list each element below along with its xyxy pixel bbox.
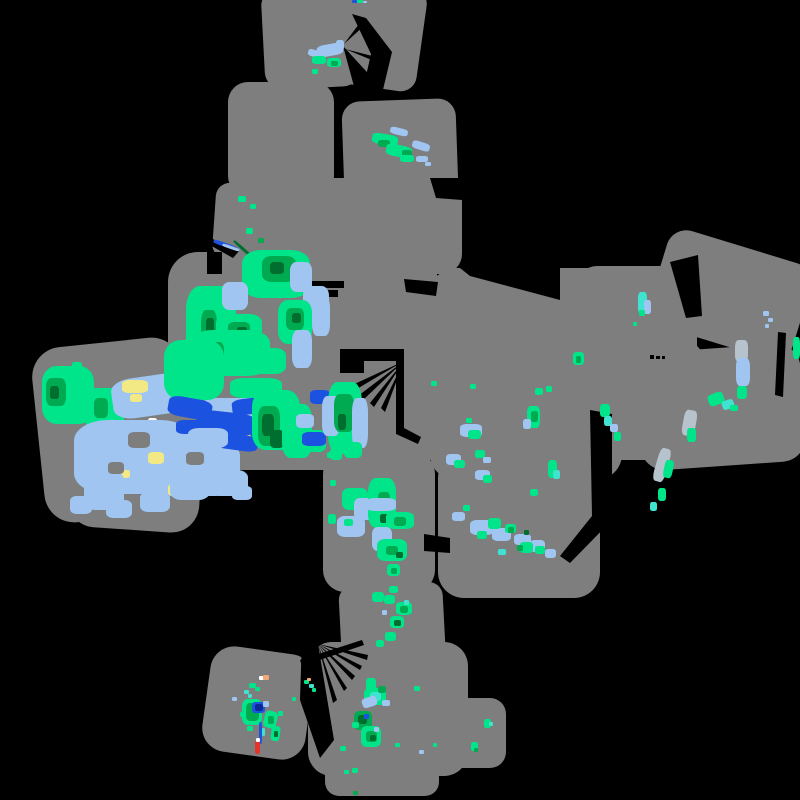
precip-echo — [344, 442, 362, 458]
precip-echo — [644, 300, 651, 314]
precip-echo — [687, 428, 696, 442]
precip-echo — [374, 727, 379, 732]
precip-echo — [389, 586, 398, 593]
precip-echo — [232, 486, 252, 500]
precip-echo — [425, 162, 431, 166]
precip-echo — [340, 746, 346, 751]
precip-echo — [328, 514, 336, 524]
precip-echo — [370, 735, 376, 741]
precip-echo — [768, 318, 773, 322]
precip-echo — [535, 546, 545, 554]
precip-echo — [382, 610, 387, 615]
precip-echo — [352, 398, 368, 448]
precip-echo — [363, 1, 367, 3]
precip-echo — [763, 311, 769, 316]
precip-echo — [247, 726, 253, 731]
precip-echo — [186, 452, 204, 465]
precip-echo — [296, 414, 314, 428]
precip-echo — [232, 697, 237, 701]
precip-echo — [477, 531, 487, 539]
precip-echo — [238, 196, 246, 202]
precip-echo — [466, 418, 472, 423]
precip-echo — [452, 512, 465, 521]
beam-blockage-wedge — [460, 268, 560, 300]
radar-composite-map — [0, 0, 800, 800]
precip-echo — [246, 228, 253, 234]
precip-echo — [250, 204, 256, 209]
beam-blockage-wedge — [404, 279, 438, 296]
precip-echo — [400, 606, 408, 613]
precip-echo — [400, 155, 414, 162]
precip-echo — [488, 518, 501, 529]
precip-echo — [404, 600, 409, 605]
precip-echo — [312, 296, 330, 336]
precip-echo — [336, 40, 344, 50]
precip-echo — [414, 686, 420, 691]
precip-echo — [433, 743, 437, 747]
precip-echo — [793, 337, 800, 359]
precip-echo — [639, 310, 645, 316]
precip-echo — [391, 568, 397, 574]
precip-echo — [489, 722, 493, 726]
precip-echo — [366, 498, 396, 511]
precip-echo — [122, 380, 148, 393]
precip-echo — [535, 388, 543, 395]
precip-echo — [454, 460, 465, 468]
precip-echo — [140, 492, 170, 512]
precip-echo — [524, 530, 529, 535]
precip-echo — [188, 428, 228, 448]
precip-echo — [148, 452, 164, 464]
precip-echo — [498, 549, 506, 555]
precip-echo — [395, 743, 400, 747]
map-dot-marker — [656, 356, 660, 359]
precip-echo — [170, 470, 210, 500]
precip-echo — [50, 386, 59, 399]
precip-echo — [128, 432, 150, 448]
precip-echo — [222, 282, 248, 310]
precip-echo — [255, 687, 260, 691]
precip-echo — [344, 519, 353, 526]
precip-echo — [292, 330, 312, 368]
precip-echo — [737, 386, 747, 399]
precip-echo — [278, 711, 283, 716]
precip-echo — [523, 419, 531, 429]
precip-echo — [72, 362, 82, 370]
precip-echo — [274, 731, 278, 737]
precip-echo — [292, 313, 301, 323]
precip-echo — [94, 398, 108, 418]
precip-echo — [352, 722, 359, 728]
precip-echo — [384, 595, 395, 604]
precip-echo — [364, 714, 369, 719]
precip-echo — [576, 356, 581, 363]
precip-echo — [258, 238, 264, 243]
precip-echo — [633, 322, 637, 326]
beam-blockage-wedge — [430, 178, 462, 200]
precip-echo — [263, 675, 269, 680]
precip-echo — [106, 500, 132, 518]
precip-echo — [376, 640, 384, 647]
precip-echo — [396, 552, 403, 558]
beam-blockage-wedge — [424, 534, 450, 553]
precip-echo — [327, 452, 335, 458]
precip-echo — [545, 549, 556, 558]
precip-echo — [108, 462, 124, 474]
precip-echo — [338, 414, 346, 430]
precip-echo — [483, 475, 492, 483]
precip-echo — [463, 505, 470, 511]
precip-echo — [344, 770, 349, 774]
precip-echo — [270, 262, 284, 274]
precip-echo — [610, 424, 618, 432]
beam-blockage-wedge — [670, 255, 702, 318]
precip-echo — [240, 712, 245, 717]
precip-echo — [302, 432, 326, 446]
precip-echo — [483, 457, 491, 463]
precip-echo — [268, 716, 274, 724]
precip-echo — [531, 411, 538, 422]
beam-blockage-wedge — [775, 332, 786, 397]
precip-echo — [765, 324, 769, 328]
precip-echo — [352, 768, 358, 773]
precip-echo — [378, 686, 386, 693]
precip-echo — [530, 489, 538, 496]
precip-echo — [130, 394, 142, 402]
precip-echo — [255, 740, 260, 754]
precip-echo — [394, 517, 406, 526]
precip-echo — [658, 488, 666, 501]
precip-echo — [331, 61, 338, 66]
precip-echo — [431, 381, 437, 386]
beam-blockage-wedge — [207, 252, 222, 274]
precip-echo — [330, 480, 336, 486]
precip-echo — [553, 470, 560, 479]
precip-echo — [70, 496, 92, 514]
precip-echo — [614, 432, 621, 441]
precip-echo — [546, 386, 552, 392]
map-dot-marker — [662, 356, 665, 359]
precip-echo — [650, 502, 657, 511]
precip-echo — [256, 738, 260, 742]
precip-echo — [730, 405, 738, 411]
precip-echo — [312, 56, 326, 64]
precip-echo — [312, 69, 318, 74]
beam-blockage-wedge — [560, 410, 612, 563]
precip-echo — [246, 348, 286, 374]
precip-echo — [419, 750, 424, 754]
precip-echo — [164, 340, 224, 400]
precip-echo — [470, 384, 476, 389]
precip-echo — [382, 700, 390, 706]
precip-echo — [394, 620, 401, 626]
precip-echo — [385, 632, 396, 641]
precip-echo — [292, 697, 296, 701]
precip-echo — [508, 527, 514, 533]
precip-echo — [255, 704, 263, 711]
precip-echo — [263, 701, 269, 707]
precip-echo — [468, 430, 481, 439]
precip-echo — [353, 791, 358, 795]
beam-blockage-wedge — [396, 361, 421, 444]
map-dot-marker — [650, 355, 654, 359]
precip-echo — [372, 592, 384, 602]
precip-echo — [312, 688, 316, 692]
precip-echo — [262, 728, 265, 736]
precip-echo — [248, 694, 252, 698]
precip-echo — [474, 748, 478, 752]
precip-echo — [307, 678, 311, 681]
precip-echo — [736, 358, 750, 386]
precip-echo — [517, 545, 523, 551]
